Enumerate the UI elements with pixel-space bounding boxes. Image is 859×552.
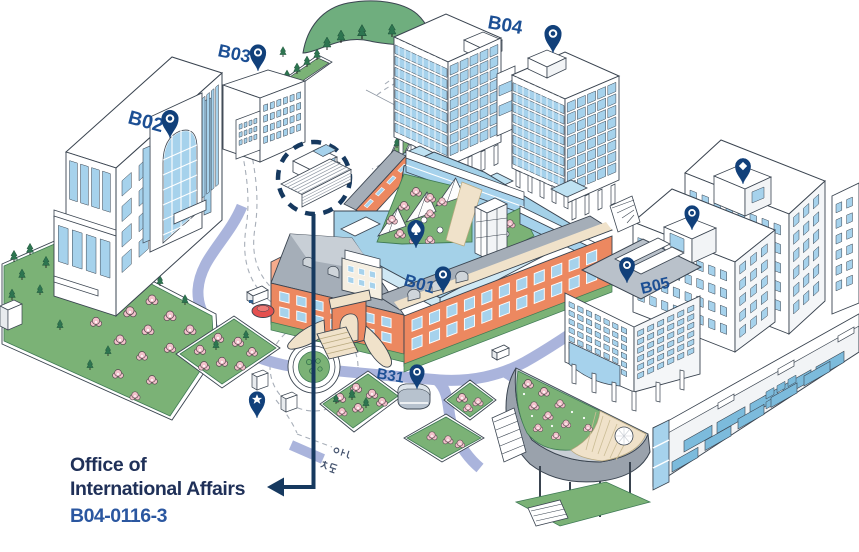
svg-text:B04-0116-3: B04-0116-3 — [70, 505, 168, 527]
svg-text:International Affairs: International Affairs — [70, 478, 246, 500]
svg-text:Office of: Office of — [70, 454, 147, 476]
